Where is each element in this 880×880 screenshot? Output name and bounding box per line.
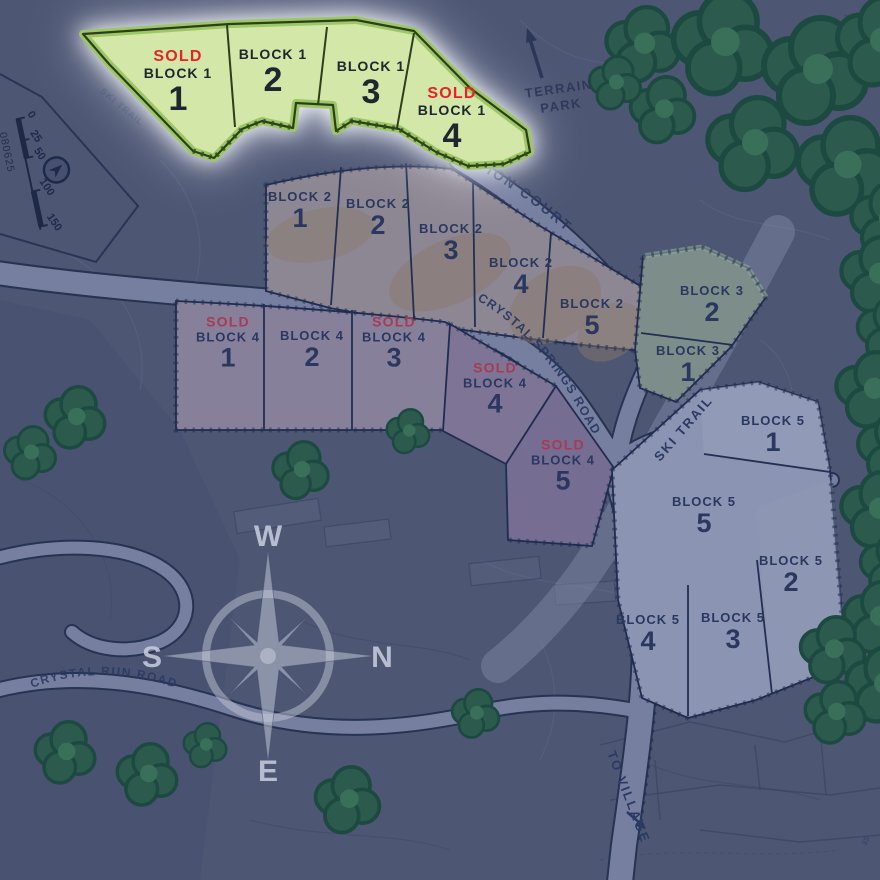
lot-block2-3[interactable]: BLOCK 2 3 (419, 222, 483, 264)
lot-block1-4[interactable]: SOLD BLOCK 1 4 (418, 85, 486, 153)
lot-number: 3 (337, 75, 405, 109)
lot-number: 5 (672, 510, 736, 537)
lot-number: 1 (656, 359, 720, 386)
lot-block4-1[interactable]: SOLD BLOCK 4 1 (196, 314, 260, 371)
sold-badge: SOLD (196, 314, 260, 330)
sold-badge: SOLD (362, 314, 426, 330)
lot-block5-5[interactable]: BLOCK 5 5 (672, 495, 736, 537)
lot-number: 2 (239, 63, 307, 97)
lot-number: 1 (196, 345, 260, 372)
lot-block4-4[interactable]: SOLD BLOCK 4 4 (463, 360, 527, 417)
lot-number: 4 (489, 271, 553, 298)
lot-block1-1[interactable]: SOLD BLOCK 1 1 (144, 48, 212, 116)
lot-number: 4 (463, 391, 527, 418)
lot-number: 3 (362, 345, 426, 372)
lot-block5-2[interactable]: BLOCK 5 2 (759, 554, 823, 596)
lot-block5-3[interactable]: BLOCK 5 3 (701, 611, 765, 653)
lot-number: 4 (418, 119, 486, 153)
lot-number: 5 (531, 468, 595, 495)
lot-number: 3 (419, 237, 483, 264)
sold-badge: SOLD (463, 360, 527, 376)
lot-block4-3[interactable]: SOLD BLOCK 4 3 (362, 314, 426, 371)
lot-block2-4[interactable]: BLOCK 2 4 (489, 256, 553, 298)
lot-block5-4[interactable]: BLOCK 5 4 (616, 613, 680, 655)
lot-block1-2[interactable]: BLOCK 1 2 (239, 47, 307, 97)
lot-block3-1[interactable]: BLOCK 3 1 (656, 344, 720, 386)
lot-number: 1 (741, 429, 805, 456)
lot-number: 5 (560, 312, 624, 339)
lot-block2-5[interactable]: BLOCK 2 5 (560, 297, 624, 339)
lot-number: 1 (144, 82, 212, 116)
sold-badge: SOLD (144, 48, 212, 66)
site-plan-map: STATION COURT CRYSTAL SPRINGS ROAD CRYST… (0, 0, 880, 880)
lot-block4-5[interactable]: SOLD BLOCK 4 5 (531, 437, 595, 494)
compass-east: E (258, 755, 278, 789)
lot-number: 2 (280, 344, 344, 371)
lot-number: 2 (759, 569, 823, 596)
lot-block1-3[interactable]: BLOCK 1 3 (337, 59, 405, 109)
lot-block2-2[interactable]: BLOCK 2 2 (346, 197, 410, 239)
sold-badge: SOLD (531, 437, 595, 453)
lot-number: 2 (680, 299, 744, 326)
lot-number: 3 (701, 626, 765, 653)
compass-south: S (142, 641, 162, 675)
sold-badge: SOLD (418, 85, 486, 103)
lot-block3-2[interactable]: BLOCK 3 2 (680, 284, 744, 326)
lot-block4-2[interactable]: BLOCK 4 2 (280, 329, 344, 371)
lot-number: 2 (346, 212, 410, 239)
lot-number: 1 (268, 205, 332, 232)
lot-number: 4 (616, 628, 680, 655)
compass-west: W (254, 520, 282, 554)
compass-north: N (371, 641, 393, 675)
lot-block2-1[interactable]: BLOCK 2 1 (268, 190, 332, 232)
lot-block5-1[interactable]: BLOCK 5 1 (741, 414, 805, 456)
